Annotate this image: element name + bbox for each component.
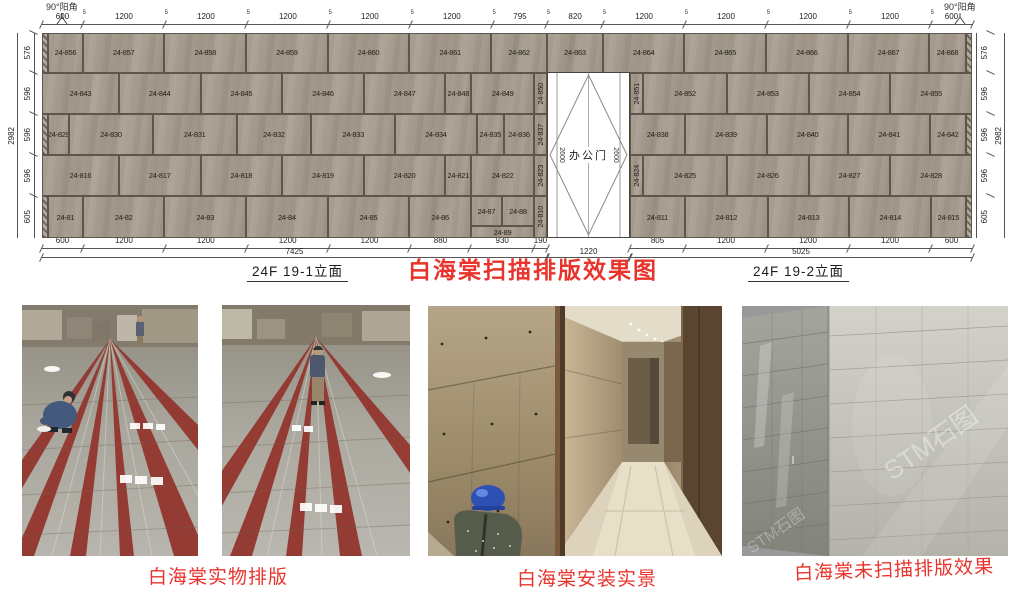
stone-panel: 24-834 (395, 114, 477, 155)
panel-label: 24-823 (536, 165, 545, 187)
stone-panel: 24-88 (502, 196, 534, 226)
panel-label: 24-841 (878, 130, 900, 139)
elevation-label-left: 24F 19-1立面 (247, 260, 348, 282)
stone-panel: 24-846 (282, 73, 364, 114)
panel-label: 24-842 (937, 130, 959, 139)
panel-label: 24-839 (715, 130, 737, 139)
stone-panel: 24-852 (643, 73, 727, 114)
stone-panel: 24-842 (930, 114, 966, 155)
stone-panel: 24-857 (83, 33, 165, 73)
panel-label: 24-830 (100, 130, 122, 139)
stone-panel: 24-836 (504, 114, 534, 155)
stone-panel-stack: 24-8724-8824-89 (471, 196, 534, 238)
panel-label: 24-826 (757, 171, 779, 180)
panel-label: 24-824 (632, 165, 641, 187)
dimension-label: 12005 (165, 12, 247, 24)
panel-label: 24-812 (716, 213, 738, 222)
panel-label: 24-813 (798, 213, 820, 222)
dimension-label: 12005 (83, 12, 165, 24)
dimension-label: 596 (977, 114, 991, 155)
wall-row: 24-81624-81724-81824-81924-82024-82124-8… (42, 155, 972, 196)
stone-panel: 24-820 (364, 155, 446, 196)
photo-factory-layout-1 (22, 305, 198, 556)
panel-label: 24-833 (342, 130, 364, 139)
panel-label: 24-854 (839, 89, 861, 98)
stone-panel: 24-847 (364, 73, 446, 114)
dimension-label: 596 (977, 155, 991, 196)
dimension-label: 600 (931, 12, 972, 24)
stone-panel: 24-824 (630, 155, 643, 196)
panel-label: 24-840 (797, 130, 819, 139)
photo-installation-wall (428, 306, 565, 556)
dimension-text: 576 (980, 46, 989, 59)
total-height-left: 2982 (5, 33, 18, 238)
panel-label: 24-83 (196, 213, 214, 222)
dimension-text: 605 (980, 210, 989, 223)
panel-label: 24-838 (647, 130, 669, 139)
stone-panel: 24-868 (929, 33, 965, 73)
dimension-label: 576 (20, 33, 34, 73)
caption-installed-view: 白海棠安装实景 (517, 564, 657, 591)
panel-label: 24-84 (278, 213, 296, 222)
panel-label: 24-810 (536, 206, 545, 228)
panel-label: 24-837 (536, 124, 545, 146)
door-label: 办公门 (568, 147, 609, 163)
caption-physical-layout: 白海棠实物排版 (148, 562, 288, 589)
door-height-dim: 2600 (612, 147, 619, 163)
stone-panel: 24-85 (328, 196, 410, 238)
panel-label: 24-848 (448, 89, 470, 98)
dimension-label: 12005 (603, 12, 685, 24)
panel-label: 24-834 (425, 130, 447, 139)
panel-label: 24-843 (70, 89, 92, 98)
corridor-illustration (565, 306, 722, 556)
panel-label: 24-861 (439, 48, 461, 57)
sheet-title: 白海棠扫描排版效果图 (408, 251, 658, 285)
stone-panel: 24-82 (83, 196, 165, 238)
panel-label: 24-857 (113, 48, 135, 57)
panel-label: 24-828 (920, 171, 942, 180)
panel-label: 24-863 (564, 48, 586, 57)
stone-panel: 24-853 (727, 73, 809, 114)
stone-panel: 24-87 (471, 196, 502, 226)
panel-label: 24-850 (536, 83, 545, 105)
stone-panel: 24-826 (727, 155, 809, 196)
dimension-label: 12005 (329, 12, 411, 24)
stone-panel: 24-850 (534, 73, 547, 114)
panel-label: 24-846 (312, 89, 334, 98)
stone-panel: 24-829 (48, 114, 69, 155)
dimension-text: 596 (980, 169, 989, 182)
panel-label: 24-818 (231, 171, 253, 180)
dimension-text: 596 (980, 87, 989, 100)
photo-unscanned-corner: STM石图 STM石图 (742, 306, 1008, 556)
stone-panel: 24-845 (201, 73, 283, 114)
panel-label: 24-867 (878, 48, 900, 57)
panel-label: 24-832 (263, 130, 285, 139)
wall-row: 24-8124-8224-8324-8424-8524-8624-8724-88… (42, 196, 972, 238)
stone-panel: 24-859 (246, 33, 328, 73)
panel-label: 24-865 (714, 48, 736, 57)
stone-panel: 24-828 (890, 155, 972, 196)
stone-panel: 24-863 (547, 33, 603, 73)
panel-label: 24-868 (937, 48, 959, 57)
panel-label: 24-862 (508, 48, 530, 57)
stone-panel: 24-840 (767, 114, 849, 155)
stone-panel: 24-844 (119, 73, 201, 114)
dimension-text: 605 (23, 210, 32, 223)
stone-panel: 24-856 (48, 33, 83, 73)
panel-label: 24-816 (70, 171, 92, 180)
panel-label: 24-851 (632, 83, 641, 105)
caption-unscanned-effect: 白海棠未扫描排版效果 (794, 552, 995, 586)
stone-panel: 24-822 (471, 155, 534, 196)
stone-panel: 24-816 (42, 155, 119, 196)
stone-panel: 24-830 (69, 114, 153, 155)
dimension-label: 8205 (547, 12, 603, 24)
stone-panel: 24-858 (164, 33, 246, 73)
panel-label: 24-835 (479, 130, 501, 139)
photo-factory-layout-2 (222, 305, 410, 556)
dimension-label: 576 (977, 33, 991, 73)
stone-panel: 24-866 (766, 33, 848, 73)
panel-label: 24-85 (360, 213, 378, 222)
dimension-text: 596 (23, 169, 32, 182)
wall-row: 24-82924-83024-83124-83224-83324-83424-8… (42, 114, 972, 155)
panel-label: 24-860 (358, 48, 380, 57)
dimension-label: 605 (977, 196, 991, 238)
stone-panel: 24-843 (42, 73, 119, 114)
panel-label: 24-89 (494, 228, 512, 237)
panel-label: 24-847 (394, 89, 416, 98)
elevation-label-right: 24F 19-2立面 (748, 260, 849, 282)
stack-top: 24-8724-88 (471, 196, 534, 226)
factory-floor-illustration (222, 305, 410, 556)
corner-wall-illustration: STM石图 STM石图 (742, 306, 1008, 556)
right-dimension-strip: 576596596596605 (976, 33, 991, 238)
left-dimension-strip: 576596596596605 (20, 33, 35, 238)
panel-label: 24-853 (757, 89, 779, 98)
stone-panel: 24-83 (164, 196, 246, 238)
stone-panel: 24-832 (237, 114, 312, 155)
dimension-label: 7955 (493, 12, 547, 24)
dimension-label: 596 (20, 114, 34, 155)
panel-label: 24-815 (938, 213, 960, 222)
panel-label: 24-88 (509, 207, 527, 216)
dimension-label: 605 (20, 196, 34, 238)
total-height-right: 2982 (992, 33, 1005, 238)
panel-label: 24-82 (115, 213, 133, 222)
total-height-label: 2982 (994, 127, 1003, 145)
wall-row: 24-84324-84424-84524-84624-84724-84824-8… (42, 73, 972, 114)
panel-label: 24-852 (674, 89, 696, 98)
stone-panel: 24-855 (890, 73, 972, 114)
panel-label: 24-819 (312, 171, 334, 180)
stone-panel: 24-837 (534, 114, 547, 155)
stone-panel: 24-838 (630, 114, 685, 155)
corner-return-hatch (966, 196, 972, 238)
stone-panel: 24-851 (630, 73, 643, 114)
total-height-label: 2982 (7, 127, 16, 145)
stone-panel: 24-811 (630, 196, 685, 238)
stone-panel: 24-84 (246, 196, 328, 238)
stone-panel: 24-835 (477, 114, 504, 155)
dimension-label: 12005 (411, 12, 493, 24)
panel-label: 24-844 (149, 89, 171, 98)
stone-panel: 24-849 (471, 73, 534, 114)
stone-panel: 24-821 (445, 155, 471, 196)
factory-floor-illustration (22, 305, 198, 556)
stone-panel: 24-865 (684, 33, 766, 73)
dimension-label: 12005 (247, 12, 329, 24)
dimension-label: 596 (977, 73, 991, 114)
stone-panel: 24-813 (768, 196, 850, 238)
stone-panel: 24-812 (685, 196, 768, 238)
stone-panel: 24-841 (848, 114, 930, 155)
dimension-text: 596 (23, 87, 32, 100)
photo-installation-corridor (565, 306, 722, 556)
panel-label: 24-827 (839, 171, 861, 180)
total-dim-right: 5025 (630, 247, 972, 258)
panel-label: 24-829 (48, 130, 69, 139)
dimension-text: 596 (23, 128, 32, 141)
stone-panel: 24-86 (409, 196, 471, 238)
stone-panel: 24-823 (534, 155, 547, 196)
panel-label: 24-81 (57, 213, 75, 222)
panel-label: 24-86 (431, 213, 449, 222)
panel-label: 24-866 (796, 48, 818, 57)
stone-panel: 24-815 (931, 196, 966, 238)
panel-label: 24-856 (55, 48, 77, 57)
panel-label: 24-849 (492, 89, 514, 98)
stone-panel: 24-81 (48, 196, 83, 238)
dimension-label: 596 (20, 73, 34, 114)
stone-panel: 24-817 (119, 155, 201, 196)
dimension-label: 12005 (767, 12, 849, 24)
stone-panel: 24-827 (809, 155, 891, 196)
dimension-label: 596 (20, 155, 34, 196)
wall-row: 24-85624-85724-85824-85924-86024-86124-8… (42, 33, 972, 73)
panel-label: 24-859 (276, 48, 298, 57)
panel-label: 24-825 (674, 171, 696, 180)
corner-return-hatch (966, 33, 972, 73)
stone-panel: 24-818 (201, 155, 283, 196)
panel-label: 24-855 (920, 89, 942, 98)
stone-panel: 24-831 (153, 114, 237, 155)
stone-panel: 24-89 (471, 226, 534, 238)
dimension-label: 12005 (685, 12, 767, 24)
layout-sheet: 90°阳角 90°阳角 6005120051200512005120051200… (0, 0, 1010, 591)
stone-panel: 24-810 (534, 196, 547, 238)
panel-label: 24-864 (633, 48, 655, 57)
panel-label: 24-821 (448, 171, 470, 180)
panel-label: 24-87 (477, 207, 495, 216)
dimension-text: 596 (980, 128, 989, 141)
panel-label: 24-811 (647, 213, 668, 222)
panel-label: 24-814 (879, 213, 901, 222)
office-door: 2600 2600 办公门 (547, 72, 630, 238)
panel-label: 24-858 (194, 48, 216, 57)
stone-panel: 24-854 (809, 73, 891, 114)
panel-label: 24-822 (492, 171, 514, 180)
stone-elevation: 24-85624-85724-85824-85924-86024-86124-8… (42, 33, 972, 238)
stone-panel: 24-839 (685, 114, 767, 155)
stone-panel: 24-867 (848, 33, 930, 73)
stone-panel: 24-814 (849, 196, 931, 238)
stone-panel: 24-819 (282, 155, 364, 196)
stone-panel: 24-861 (409, 33, 491, 73)
panel-label: 24-820 (394, 171, 416, 180)
panel-label: 24-845 (231, 89, 253, 98)
stone-panel: 24-848 (445, 73, 471, 114)
top-dimension-strip: 6005120051200512005120051200579558205120… (42, 12, 972, 25)
dimension-label: 6005 (42, 12, 83, 24)
corner-return-hatch (966, 114, 972, 155)
panel-label: 24-836 (508, 130, 530, 139)
stone-panel: 24-862 (491, 33, 547, 73)
panel-label: 24-817 (149, 171, 171, 180)
door-height-dim: 2600 (558, 147, 565, 163)
dimension-text: 576 (23, 46, 32, 59)
stone-panel: 24-860 (328, 33, 410, 73)
installed-wall-illustration (428, 306, 565, 556)
panel-label: 24-831 (184, 130, 206, 139)
stone-panel: 24-864 (603, 33, 685, 73)
stone-panel: 24-825 (643, 155, 727, 196)
dimension-label: 12005 (849, 12, 931, 24)
stone-panel: 24-833 (311, 114, 395, 155)
